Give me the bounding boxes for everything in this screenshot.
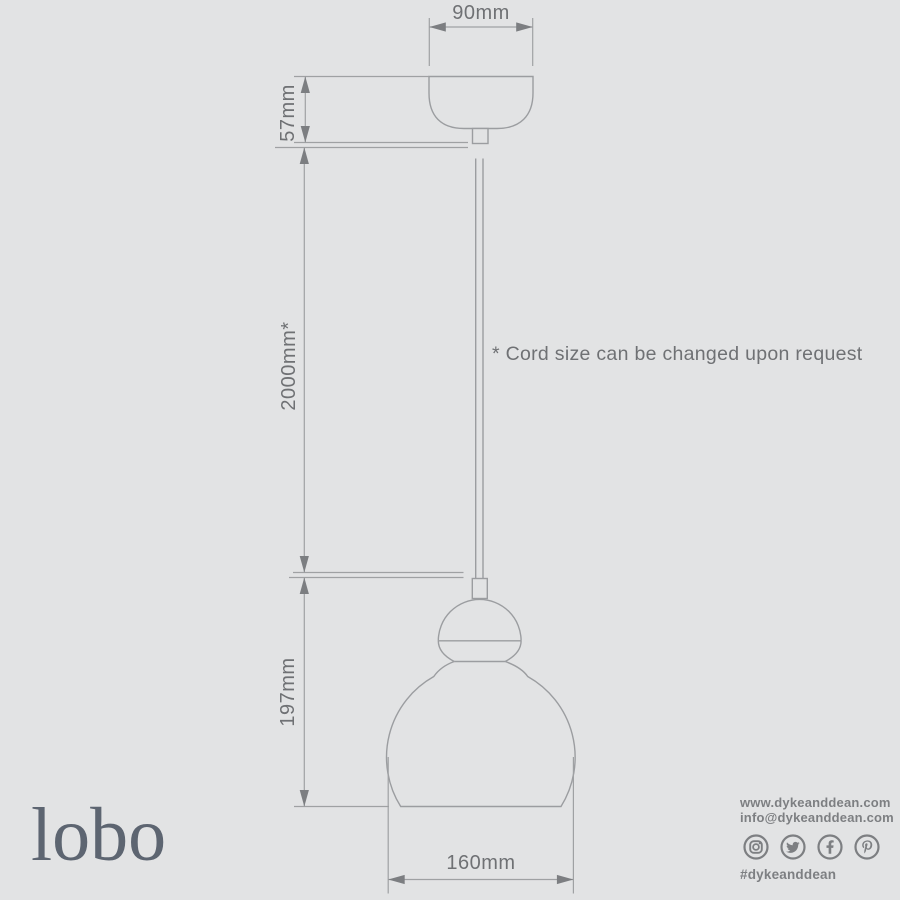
dimension-lines-group [275,18,573,894]
cord-size-note: * Cord size can be changed upon request [492,343,863,366]
twitter-icon [780,834,806,860]
hashtag-text: #dykeanddean [740,867,895,882]
instagram-icon [743,834,769,860]
arrow-2000-up [300,148,309,165]
cord-length-label: 2000mm* [278,311,300,421]
arrow-57-down [301,126,310,143]
shade-diameter-label: 160mm [431,852,531,874]
email-text: info@dykeanddean.com [740,811,895,826]
canopy-height-label: 57mm [277,68,299,158]
gallery-ball-lower-left [438,641,454,662]
arrow-2000-down [300,556,309,573]
ceiling-canopy-outline [429,77,533,129]
contact-block: www.dykeanddean.com info@dykeanddean.com [740,796,895,882]
technical-drawing-page: 90mm 57mm 2000mm* 197mm 160mm * Cord siz… [0,0,900,900]
glass-shade-outline [387,662,576,807]
cord-grip-outline [473,129,489,144]
arrow-160-right [557,875,574,884]
gallery-ball-lower-right [505,641,521,662]
pendant-diagram [0,0,900,900]
socket-cap-outline [472,579,487,599]
pinterest-icon [854,834,880,860]
facebook-icon [817,834,843,860]
canopy-width-label: 90mm [431,2,531,24]
lobo-logo: lobo [31,795,166,875]
lamp-shade-group [387,579,576,807]
arrow-197-up [300,578,309,595]
ceiling-canopy-group [429,77,533,144]
cord-group [476,159,483,579]
arrow-160-left [388,875,405,884]
shade-height-label: 197mm [277,642,299,742]
gallery-ball-outline [438,599,521,640]
website-text: www.dykeanddean.com [740,796,895,811]
arrow-57-up [301,77,310,94]
dimension-arrows-group [300,22,574,884]
social-icons-row [743,834,895,861]
arrow-197-down [300,790,309,807]
